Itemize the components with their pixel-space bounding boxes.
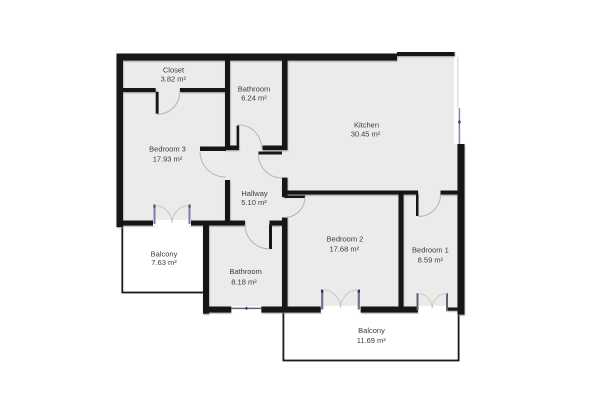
svg-text:8.18 m²: 8.18 m² bbox=[231, 277, 257, 286]
svg-text:30.45 m²: 30.45 m² bbox=[351, 130, 381, 139]
svg-text:Balcony: Balcony bbox=[358, 326, 385, 335]
svg-text:17.68 m²: 17.68 m² bbox=[329, 244, 359, 253]
svg-text:8.59 m²: 8.59 m² bbox=[418, 255, 444, 264]
svg-text:Bathroom: Bathroom bbox=[229, 267, 262, 276]
svg-text:6.24 m²: 6.24 m² bbox=[241, 93, 267, 102]
svg-text:11.69 m²: 11.69 m² bbox=[357, 336, 387, 345]
svg-text:Balcony: Balcony bbox=[151, 249, 178, 258]
svg-text:Kitchen: Kitchen bbox=[354, 120, 379, 129]
svg-text:Bedroom 3: Bedroom 3 bbox=[149, 144, 186, 153]
svg-text:Bathroom: Bathroom bbox=[238, 84, 271, 93]
svg-text:Bedroom 2: Bedroom 2 bbox=[327, 235, 364, 244]
svg-text:Hallway: Hallway bbox=[241, 189, 268, 198]
svg-text:3.82 m²: 3.82 m² bbox=[161, 75, 187, 84]
svg-text:Bedroom 1: Bedroom 1 bbox=[412, 246, 449, 255]
svg-text:5.10 m²: 5.10 m² bbox=[241, 198, 267, 207]
svg-text:7.63 m²: 7.63 m² bbox=[151, 258, 177, 267]
svg-text:17.93 m²: 17.93 m² bbox=[153, 154, 183, 163]
svg-text:Closet: Closet bbox=[163, 66, 185, 75]
